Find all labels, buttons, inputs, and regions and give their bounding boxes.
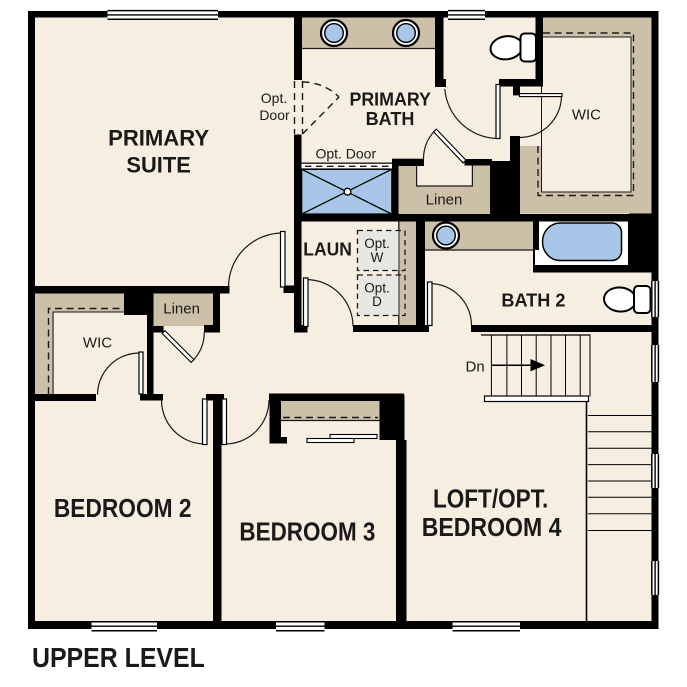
svg-text:BATH: BATH xyxy=(366,109,415,129)
svg-text:Linen: Linen xyxy=(163,301,200,318)
svg-text:BEDROOM 3: BEDROOM 3 xyxy=(239,519,375,547)
svg-text:Door: Door xyxy=(259,107,290,123)
svg-text:Linen: Linen xyxy=(426,192,463,209)
svg-text:W: W xyxy=(371,250,384,265)
svg-text:WIC: WIC xyxy=(83,335,112,352)
svg-text:LOFT/OPT.: LOFT/OPT. xyxy=(433,486,548,514)
svg-text:D: D xyxy=(372,294,382,309)
svg-text:Opt. Door: Opt. Door xyxy=(315,146,376,162)
svg-text:BEDROOM 4: BEDROOM 4 xyxy=(422,514,563,542)
svg-text:BEDROOM 2: BEDROOM 2 xyxy=(54,495,192,523)
svg-text:LAUN: LAUN xyxy=(303,239,352,260)
svg-text:Dn: Dn xyxy=(466,359,485,376)
svg-text:Opt.: Opt. xyxy=(364,236,390,251)
svg-text:WIC: WIC xyxy=(572,106,601,123)
svg-text:BATH 2: BATH 2 xyxy=(501,290,565,311)
svg-text:PRIMARY: PRIMARY xyxy=(349,89,431,109)
svg-text:PRIMARY: PRIMARY xyxy=(108,126,209,151)
svg-text:SUITE: SUITE xyxy=(126,152,191,177)
svg-text:UPPER LEVEL: UPPER LEVEL xyxy=(32,642,205,673)
svg-text:Opt.: Opt. xyxy=(261,90,287,106)
